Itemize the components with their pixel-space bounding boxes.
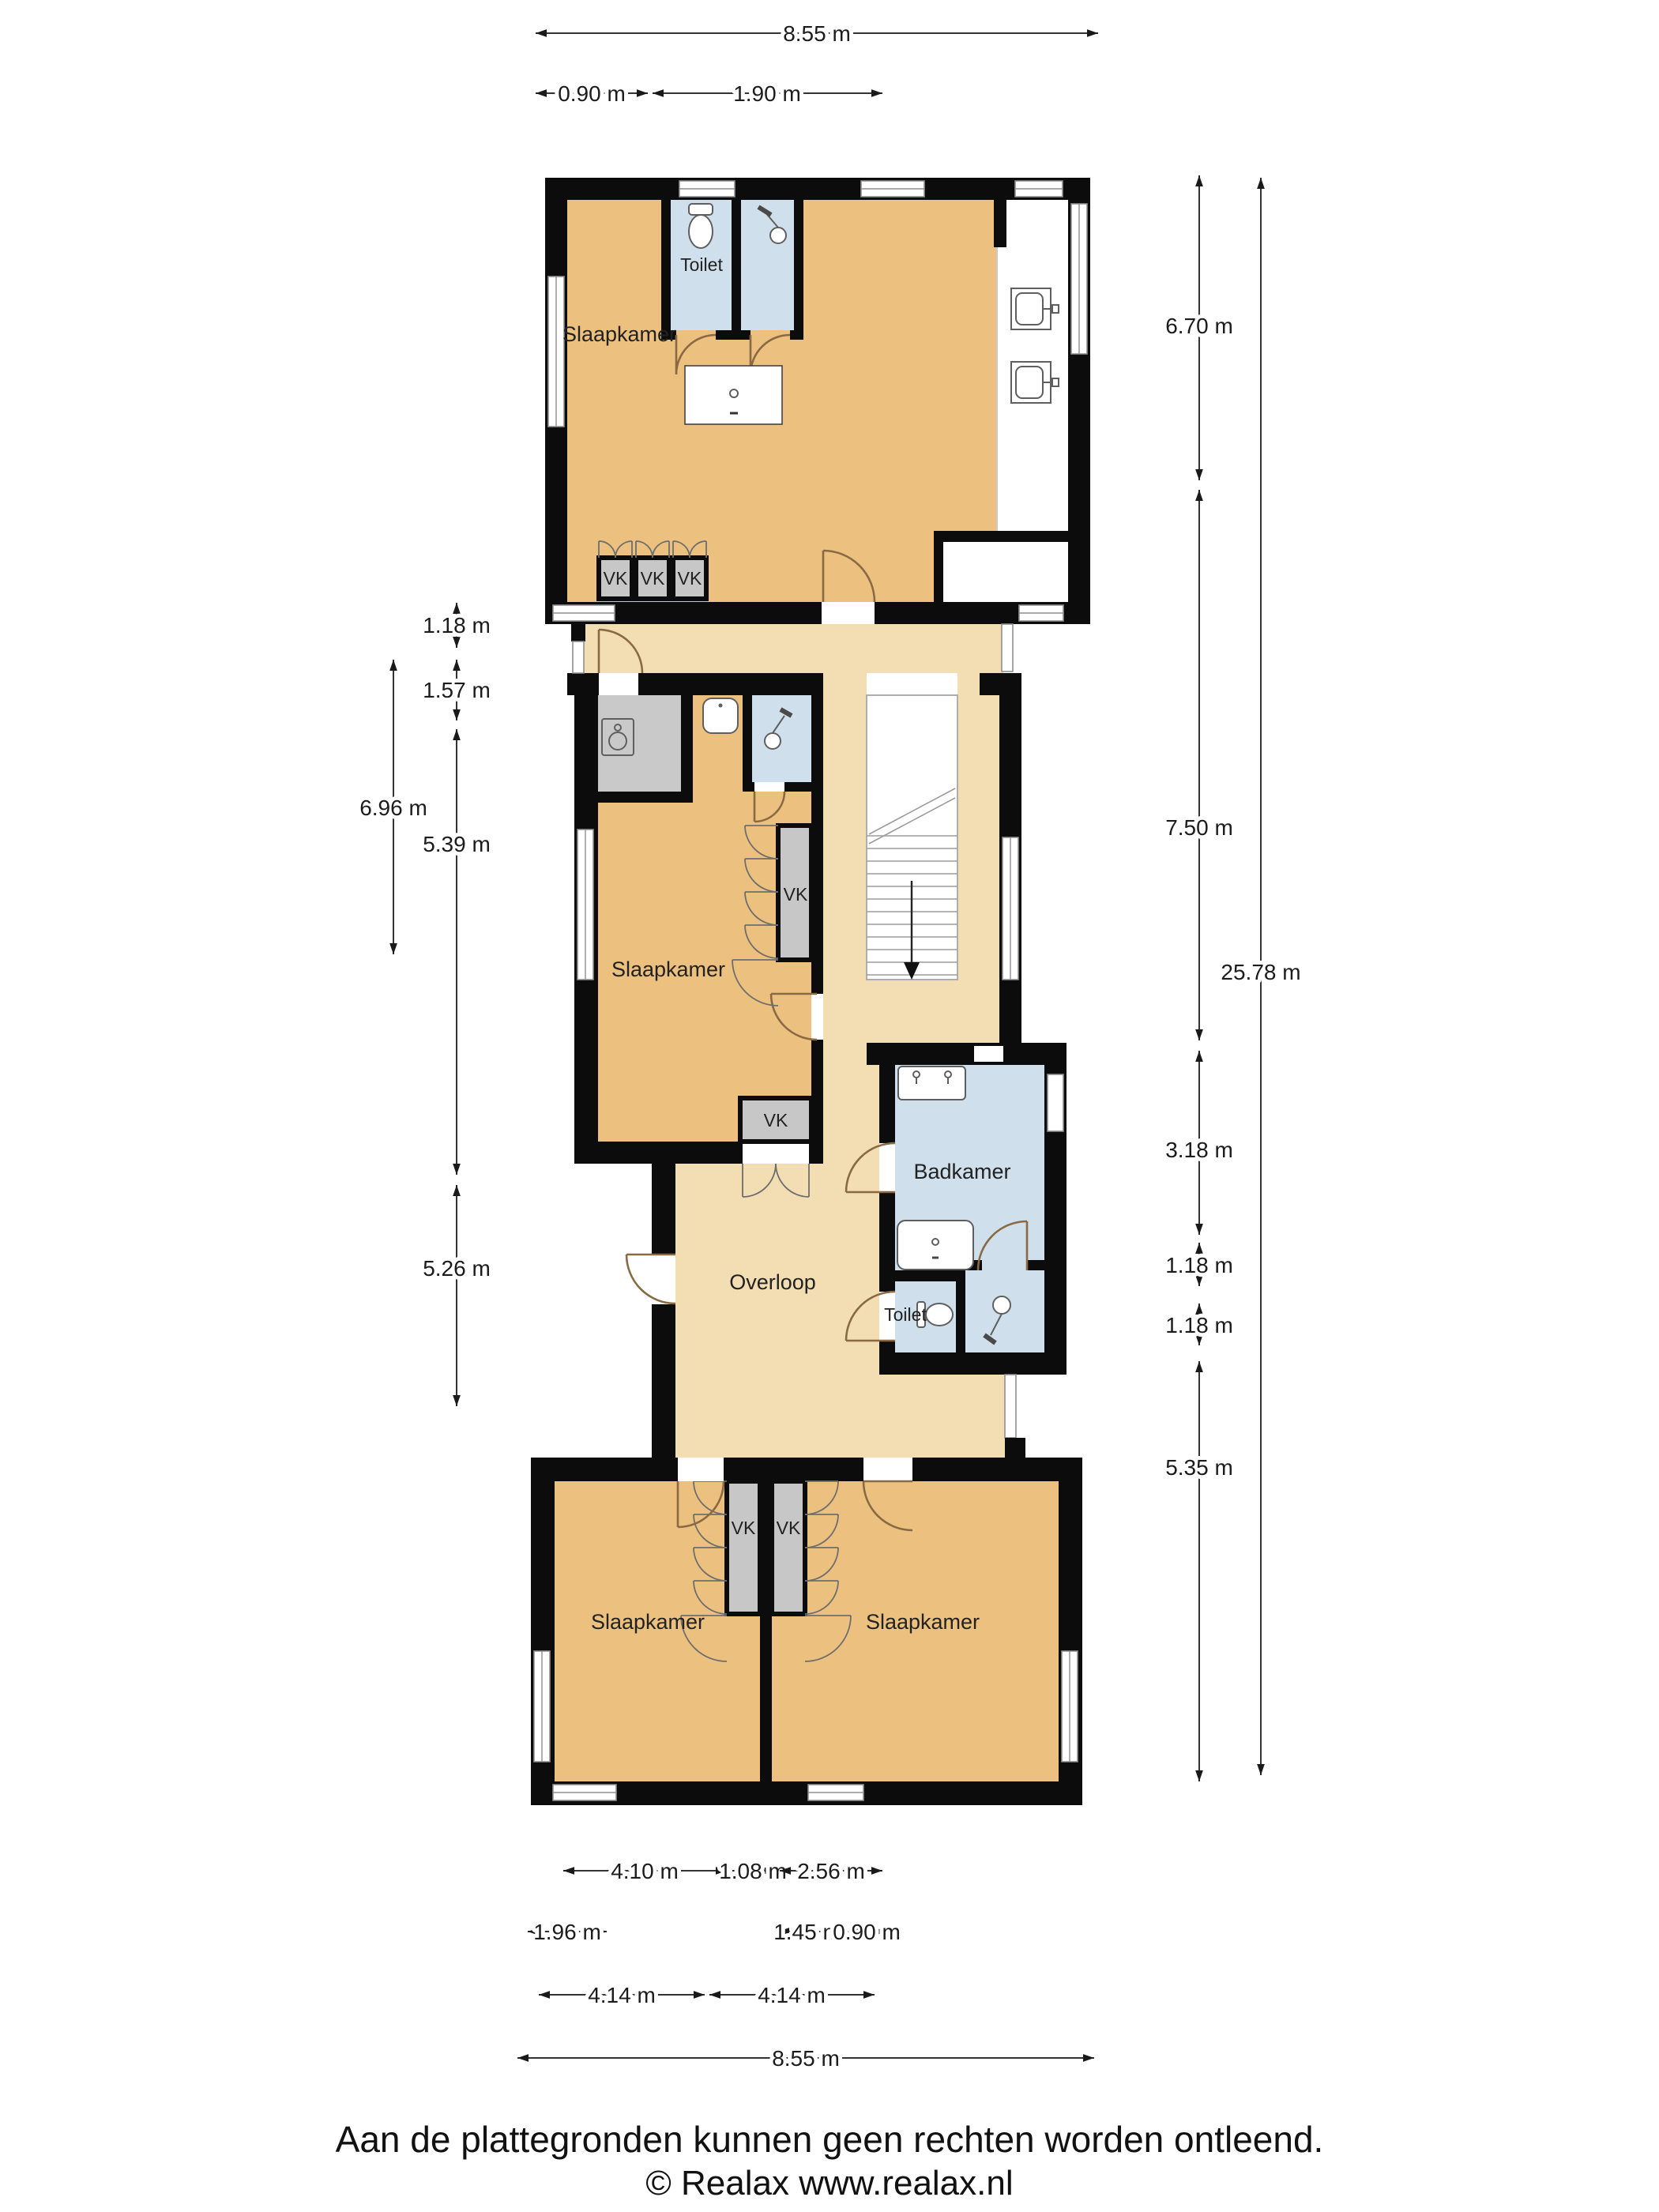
middle-floor-block: VK VK (567, 624, 1066, 1458)
wall (895, 1270, 956, 1281)
wall-stub (994, 200, 1006, 247)
closet-label: VK (641, 568, 665, 589)
wall (879, 1352, 1066, 1375)
room-label-bathroom: Badkamer (913, 1160, 1010, 1183)
wall (999, 1352, 1021, 1375)
dim-right-5: 5.35 m (1165, 1455, 1233, 1480)
dim-bottom-r2-1: 1.45 m (773, 1920, 841, 1944)
window-opening (974, 1046, 1003, 1062)
washbasin-icon (1011, 288, 1059, 329)
closet-label: VK (604, 568, 628, 589)
landing-funnel (675, 1375, 1015, 1458)
wall (1027, 1260, 1044, 1270)
dim-right-0: 6.70 m (1165, 314, 1233, 338)
wall (743, 695, 752, 792)
walkin-closet-room (598, 695, 681, 792)
door-opening (599, 673, 638, 695)
landing-band (574, 624, 1003, 673)
wall (732, 200, 741, 340)
closet-label: VK (764, 1110, 788, 1130)
dim-top-a: 0.90 m (558, 81, 626, 106)
copyright-text: © Realax www.realax.nl (645, 2164, 1013, 2203)
dim-left-1: 1.57 m (423, 678, 491, 702)
double-washbasin-icon (898, 1066, 965, 1100)
dim-bottom-r3-1: 4.14 m (758, 1983, 826, 2007)
wall (811, 673, 823, 695)
dim-right-outer: 25.78 m (1221, 960, 1300, 984)
sink-icon (703, 698, 738, 733)
room-label-bedroom-top: Slaapkamer (562, 322, 676, 346)
shower-top-room (741, 200, 794, 330)
dim-left-0: 1.18 m (423, 613, 491, 638)
dim-left-outer: 6.96 m (359, 796, 427, 820)
dim-top-width: 8.55 m (783, 21, 851, 46)
window (573, 641, 584, 673)
closet-label: VK (678, 568, 702, 589)
door-opening (863, 1458, 912, 1481)
wall (867, 1043, 1066, 1065)
bed-icon (685, 366, 782, 424)
dim-left-2: 5.39 m (423, 832, 491, 856)
wall (661, 200, 671, 340)
wall (574, 792, 693, 803)
toilet-icon (689, 204, 713, 248)
wall (956, 1270, 965, 1352)
wall (934, 531, 1068, 542)
room-label-toilet-mid: Toilet (884, 1304, 927, 1325)
footer: Aan de plattegronden kunnen geen rechten… (336, 2119, 1324, 2203)
dim-top-b: 1.90 m (733, 81, 801, 106)
door-opening (678, 1458, 724, 1481)
disclaimer-text: Aan de plattegronden kunnen geen rechten… (336, 2119, 1324, 2160)
floorplan-svg: VK VK VK Slaapkamer Toilet (0, 0, 1659, 2212)
dim-bottom-r1-1: 1.08 m (719, 1859, 787, 1883)
closet-label: VK (732, 1518, 756, 1538)
room-label-bedroom-bottom-right: Slaapkamer (866, 1610, 980, 1634)
dim-bottom-r1-2: 2.56 m (797, 1859, 865, 1883)
wall (794, 200, 803, 340)
dim-right-1: 7.50 m (1165, 815, 1233, 840)
room-label-bedroom-bottom-left: Slaapkamer (591, 1610, 705, 1634)
dim-bottom-r1-0: 4.10 m (611, 1859, 679, 1883)
bathtub-icon (897, 1221, 973, 1270)
wall (652, 1164, 675, 1458)
closet-opening (743, 1142, 809, 1164)
wall (741, 330, 750, 340)
door-opening (754, 782, 784, 792)
dim-right-4: 1.18 m (1165, 1313, 1233, 1337)
dim-bottom-r2-0: 1.96 m (533, 1920, 601, 1944)
dim-right-3: 1.18 m (1165, 1253, 1233, 1277)
dim-bottom-r3-0: 4.14 m (588, 1983, 656, 2007)
landing-corridor (823, 673, 867, 980)
dim-bottom-r4: 8.55 m (772, 2046, 840, 2071)
wall (980, 673, 1021, 695)
door-opening (822, 602, 875, 624)
door-opening (652, 1255, 675, 1304)
closet-label: VK (777, 1518, 801, 1538)
door-opening (879, 1143, 895, 1192)
room-label-bedroom-mid: Slaapkamer (611, 957, 725, 981)
room-label-landing: Overloop (729, 1270, 816, 1294)
room-label-toilet-top: Toilet (680, 254, 723, 275)
closet-label: VK (784, 884, 808, 905)
window (1005, 1375, 1016, 1438)
window (1002, 624, 1013, 671)
top-floor-block: VK VK VK Slaapkamer Toilet (545, 178, 1090, 624)
wall (681, 695, 693, 798)
stairwell (867, 695, 957, 980)
washbasin-icon (1011, 362, 1059, 403)
dim-bottom-r2-2: 0.90 m (833, 1920, 901, 1944)
dim-right-2: 3.18 m (1165, 1138, 1233, 1162)
wall (934, 542, 943, 602)
floorplan-canvas: VK VK VK Slaapkamer Toilet (0, 0, 1659, 2212)
landing (867, 980, 999, 1043)
washstand-strip (997, 200, 1068, 531)
wall (1005, 1438, 1025, 1458)
dim-left-3: 5.26 m (423, 1256, 491, 1281)
wall (716, 330, 741, 340)
wall (790, 330, 803, 340)
wall (571, 624, 585, 641)
window (1048, 1074, 1063, 1131)
bottom-floor-block: VK VK Slaapkamer Slaapkamer (531, 1458, 1082, 1805)
